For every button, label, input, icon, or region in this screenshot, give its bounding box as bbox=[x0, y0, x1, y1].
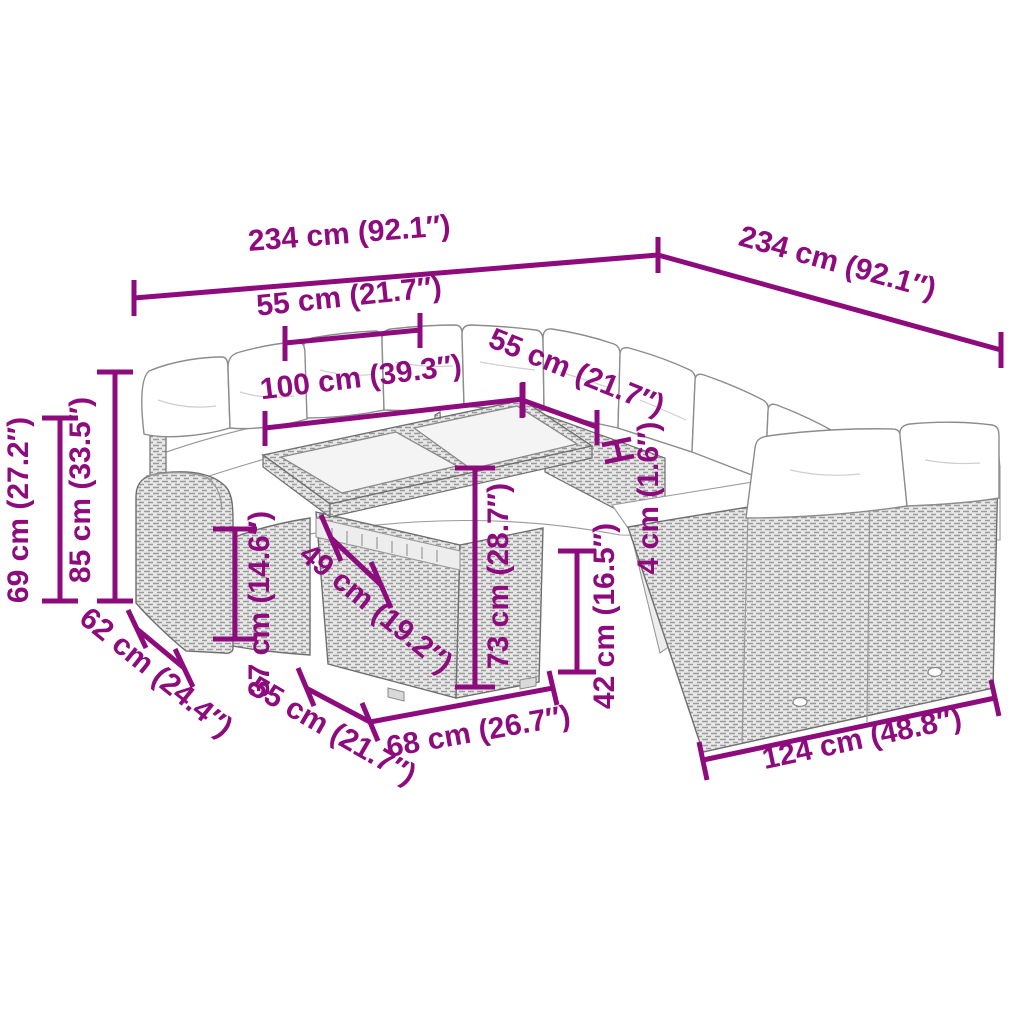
dim-label: 4 cm (1.6″) bbox=[632, 422, 665, 575]
dimension-diagram-canvas: 234 cm (92.1″) 234 cm (92.1″) 55 cm (21.… bbox=[0, 0, 1024, 1024]
dim-line bbox=[97, 372, 133, 601]
dim-backrest-height: 85 cm (33.5″) bbox=[64, 372, 133, 601]
drain-hole bbox=[793, 698, 807, 707]
dim-label: 234 cm (92.1″) bbox=[735, 220, 939, 306]
dim-label: 42 cm (16.5″) bbox=[588, 523, 621, 709]
drain-hole bbox=[928, 668, 942, 677]
dim-back-width-right: 234 cm (92.1″) bbox=[658, 220, 1001, 368]
dim-label: 68 cm (26.7″) bbox=[384, 699, 573, 764]
dim-label: 73 cm (28.7″) bbox=[482, 483, 515, 669]
dim-label: 37 cm (14.6″) bbox=[243, 511, 276, 697]
dim-label: 69 cm (27.2″) bbox=[2, 417, 35, 603]
dim-label: 85 cm (33.5″) bbox=[64, 397, 97, 583]
left-sofa-armrest bbox=[136, 472, 233, 653]
right-sofa-pillow bbox=[900, 422, 999, 506]
table-foot bbox=[388, 688, 404, 701]
furniture-dimension-diagram: 234 cm (92.1″) 234 cm (92.1″) 55 cm (21.… bbox=[0, 0, 1024, 1024]
dim-seat-height-right: 42 cm (16.5″) bbox=[558, 523, 621, 709]
right-sofa-pillow bbox=[746, 429, 907, 518]
left-sofa-pillow bbox=[142, 357, 230, 437]
dim-label: 234 cm (92.1″) bbox=[247, 209, 452, 258]
